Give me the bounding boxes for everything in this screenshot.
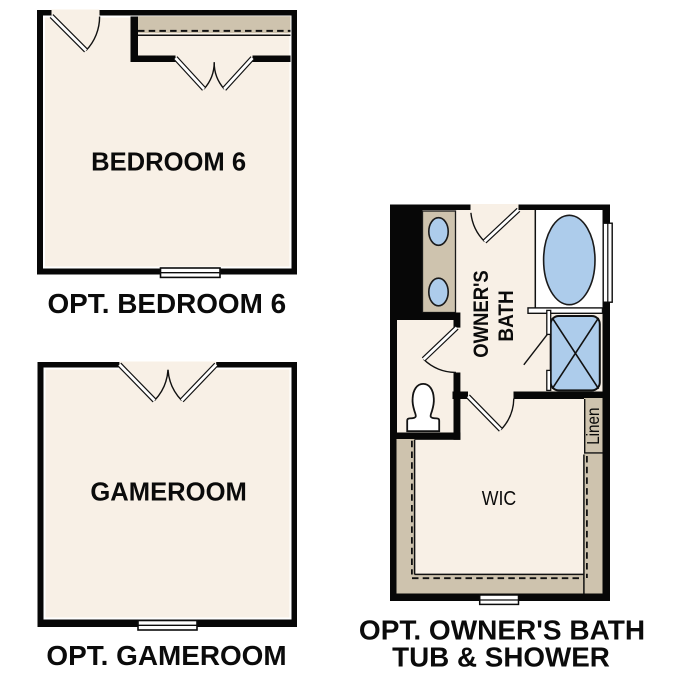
svg-text:BEDROOM 6: BEDROOM 6 <box>91 149 246 177</box>
svg-text:OPT. GAMEROOM: OPT. GAMEROOM <box>46 640 286 671</box>
svg-text:OWNER'S: OWNER'S <box>470 270 493 358</box>
svg-text:TUB & SHOWER: TUB & SHOWER <box>392 641 610 672</box>
svg-text:OPT. BEDROOM 6: OPT. BEDROOM 6 <box>47 288 286 319</box>
svg-text:BATH: BATH <box>495 290 518 341</box>
svg-text:GAMEROOM: GAMEROOM <box>90 478 246 506</box>
svg-text:Linen: Linen <box>583 408 603 445</box>
svg-text:WIC: WIC <box>482 487 517 510</box>
